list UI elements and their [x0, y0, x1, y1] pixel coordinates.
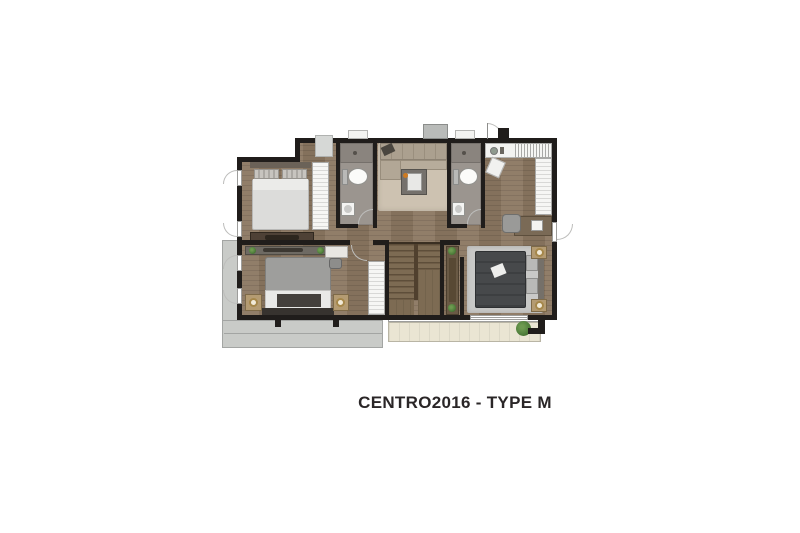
entry-door-leaf	[487, 123, 488, 139]
sliding-door-track	[470, 317, 528, 318]
wall-console-top	[442, 240, 460, 245]
window-bedroom2-upper	[237, 170, 242, 186]
top-left-exterior-notch	[235, 136, 295, 157]
bedroom3-chair	[329, 258, 342, 269]
laptop-icon	[531, 220, 543, 231]
bedroom2-wardrobe	[312, 162, 329, 230]
window-bedroom3-upper	[237, 255, 242, 271]
staircase-right-flight	[418, 244, 440, 270]
bedroom3-plant-right	[317, 247, 324, 254]
ac-unit	[423, 124, 448, 139]
staircase-top-rail	[389, 242, 440, 244]
bathroom2-basin-bowl	[455, 205, 462, 213]
master-lamp-top-icon	[535, 248, 544, 257]
wall-bath2-right	[481, 143, 485, 228]
balcony-corner-wall	[528, 328, 545, 334]
wall-stairs-right	[440, 240, 444, 320]
plan-title: CENTRO2016 - TYPE M	[330, 393, 580, 413]
bottom-left-balcony	[222, 320, 383, 348]
right-door-arc	[557, 224, 573, 240]
bedroom2-pillow-left	[254, 169, 279, 179]
hall-console-inner	[449, 258, 456, 302]
bathroom-2-drain-icon	[462, 151, 466, 155]
counter-sink-icon	[490, 147, 498, 155]
bathroom1-toilet	[348, 168, 368, 185]
bedroom3-lamp-right-icon	[336, 298, 345, 307]
wall-master-left	[460, 257, 464, 320]
bedroom3-shelf-decor	[263, 248, 303, 252]
wall-bath2-left	[447, 143, 451, 228]
wall-bath1-bottom	[336, 224, 358, 228]
wall-top-bedroom2	[237, 157, 299, 162]
bathroom1-basin-bowl	[344, 205, 352, 213]
window-box-2	[455, 130, 475, 139]
bathroom2-toilet	[459, 168, 478, 185]
window-bedroom2-lower	[237, 221, 242, 237]
wall-bath2-bottom	[447, 224, 467, 228]
window-arc-1	[223, 170, 237, 184]
balcony-edge-line	[224, 333, 382, 334]
bedroom3-desk	[325, 246, 348, 258]
bedroom2-bed-fold	[253, 179, 308, 190]
counter-vase-icon	[500, 147, 504, 154]
coffee-table-tray	[407, 173, 422, 191]
wall-stub-bottom-1	[275, 318, 281, 327]
coffee-table-bowl	[403, 173, 408, 178]
desk-chair	[502, 214, 521, 233]
dressing-hanger-rail	[515, 143, 552, 158]
bedroom3-bed-runner	[277, 294, 321, 307]
page: CENTRO2016 - TYPE M	[0, 0, 800, 533]
console-plant-top	[448, 247, 456, 255]
console-plant-bottom	[448, 304, 456, 312]
bedroom2-headboard	[250, 162, 311, 168]
window-box-1	[348, 130, 368, 139]
wall-stub-top-right	[498, 128, 509, 139]
window-bedroom3-lower	[237, 288, 242, 304]
wall-bath1-right	[373, 143, 377, 228]
floor-plan	[225, 118, 560, 350]
dressing-wardrobe	[535, 158, 552, 215]
staircase-landing	[418, 270, 440, 318]
bedroom3-plant-left	[249, 247, 256, 254]
bedroom3-cabinet	[368, 261, 385, 315]
wall-hall-bedroom3	[237, 240, 350, 245]
master-bed-duvet	[475, 251, 526, 308]
master-lamp-bottom-icon	[535, 301, 544, 310]
wall-stairs-left	[385, 243, 389, 320]
bedroom2-pillow-right	[282, 169, 307, 179]
bathroom-1-drain-icon	[353, 151, 357, 155]
staircase-left-flight	[389, 244, 414, 300]
wall-top-connector	[295, 138, 300, 162]
wall-bath1-left	[336, 143, 340, 228]
window-arc-2	[223, 223, 237, 237]
sofa-chaise	[380, 160, 401, 180]
bedroom3-lamp-left-icon	[249, 298, 258, 307]
bathroom-2-shower	[451, 143, 481, 163]
wall-stub-bottom-2	[333, 318, 339, 327]
bedroom3-headboard	[262, 308, 334, 315]
master-pillow-bottom	[526, 278, 538, 294]
exterior-ledge	[315, 135, 333, 157]
